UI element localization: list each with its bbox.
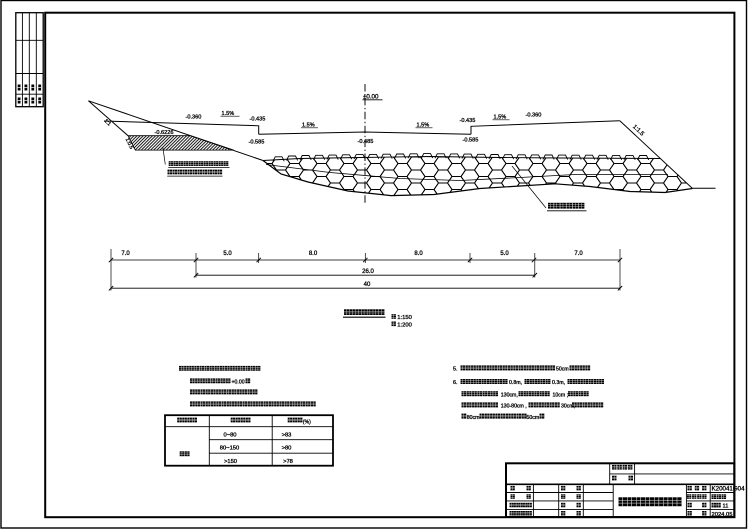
svg-text:7.0: 7.0: [574, 251, 583, 257]
svg-text:50cm: 50cm: [556, 367, 569, 373]
svg-text:7.0: 7.0: [121, 251, 130, 257]
svg-text:+0.00: +0.00: [232, 380, 245, 386]
svg-text:5.0: 5.0: [500, 251, 509, 257]
svg-text:-0.360: -0.360: [526, 113, 542, 119]
svg-text:5.0: 5.0: [223, 251, 232, 257]
svg-text:-0.585: -0.585: [463, 137, 479, 143]
svg-text:0.8m,: 0.8m,: [509, 380, 522, 386]
svg-text:0.3m,: 0.3m,: [552, 380, 565, 386]
svg-text:8.0: 8.0: [309, 251, 318, 257]
svg-text:8.0: 8.0: [414, 251, 423, 257]
svg-text:11: 11: [723, 504, 729, 510]
svg-text:10cm ;: 10cm ;: [553, 392, 569, 398]
svg-text:>83: >83: [282, 432, 292, 438]
svg-text:K20041G04: K20041G04: [712, 486, 746, 493]
svg-text:±0.00: ±0.00: [363, 93, 379, 100]
svg-text:40: 40: [364, 282, 371, 288]
svg-text:26.0: 26.0: [362, 269, 374, 275]
svg-text:-0.485: -0.485: [358, 139, 374, 145]
svg-text:130cm,: 130cm,: [501, 392, 518, 398]
svg-text:5.: 5.: [453, 367, 458, 373]
svg-text:1:150: 1:150: [397, 315, 412, 321]
svg-text:>78: >78: [283, 459, 293, 465]
svg-text:(%): (%): [303, 420, 311, 426]
svg-text:2024.05: 2024.05: [712, 512, 733, 518]
svg-text:-0.360: -0.360: [186, 115, 202, 121]
svg-text:80~150: 80~150: [220, 446, 240, 452]
svg-text:0~80: 0~80: [223, 432, 236, 438]
svg-text:>150: >150: [224, 459, 237, 465]
svg-text:80cm: 80cm: [467, 415, 480, 421]
svg-text:>80: >80: [282, 446, 292, 452]
svg-text:-0.585: -0.585: [249, 139, 265, 145]
svg-text:50cm: 50cm: [527, 415, 540, 421]
svg-text:130-80cm ,: 130-80cm ,: [501, 404, 527, 410]
svg-text:6.: 6.: [453, 380, 458, 386]
svg-text:-0.435: -0.435: [460, 118, 476, 124]
svg-text:-0.6226: -0.6226: [155, 130, 174, 136]
svg-text:1:200: 1:200: [397, 322, 412, 328]
svg-text:-0.435: -0.435: [250, 117, 266, 123]
